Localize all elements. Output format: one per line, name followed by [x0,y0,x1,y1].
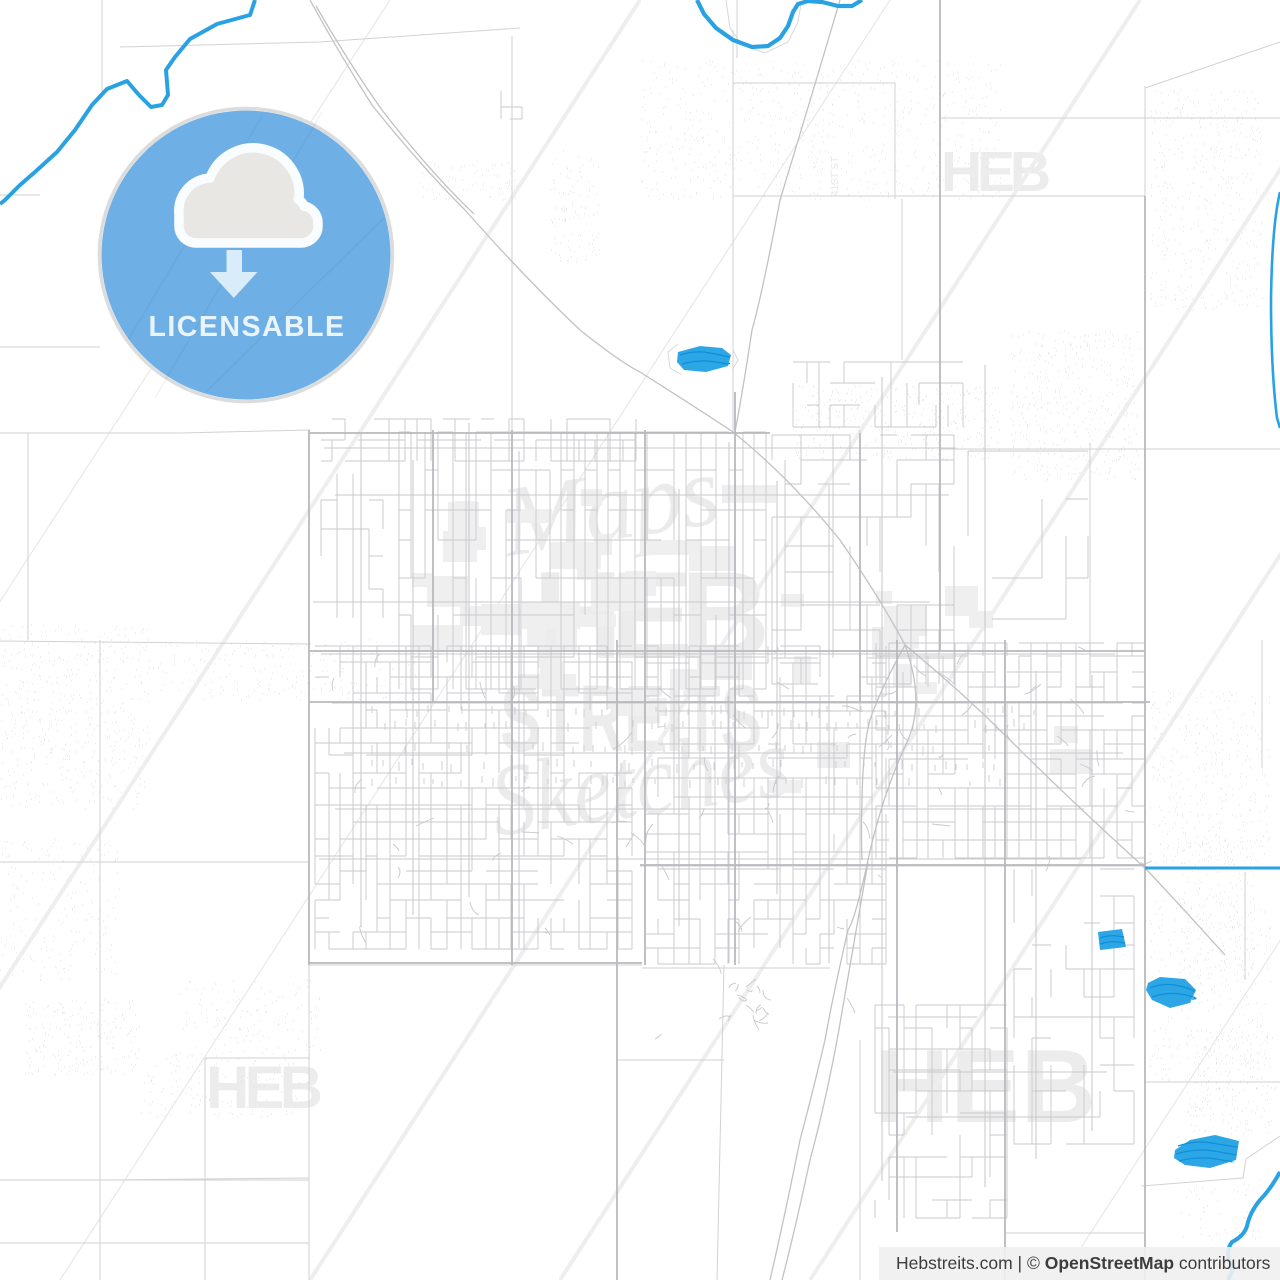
svg-text:HEB: HEB [941,140,1051,204]
svg-text:HEB: HEB [206,1054,323,1121]
svg-text:41ST ST: 41ST ST [830,157,841,196]
svg-text:Hebstreits.com | © OpenStreetM: Hebstreits.com | © OpenStreetMap contrib… [896,1253,1271,1273]
svg-text:LICENSABLE: LICENSABLE [148,311,345,343]
